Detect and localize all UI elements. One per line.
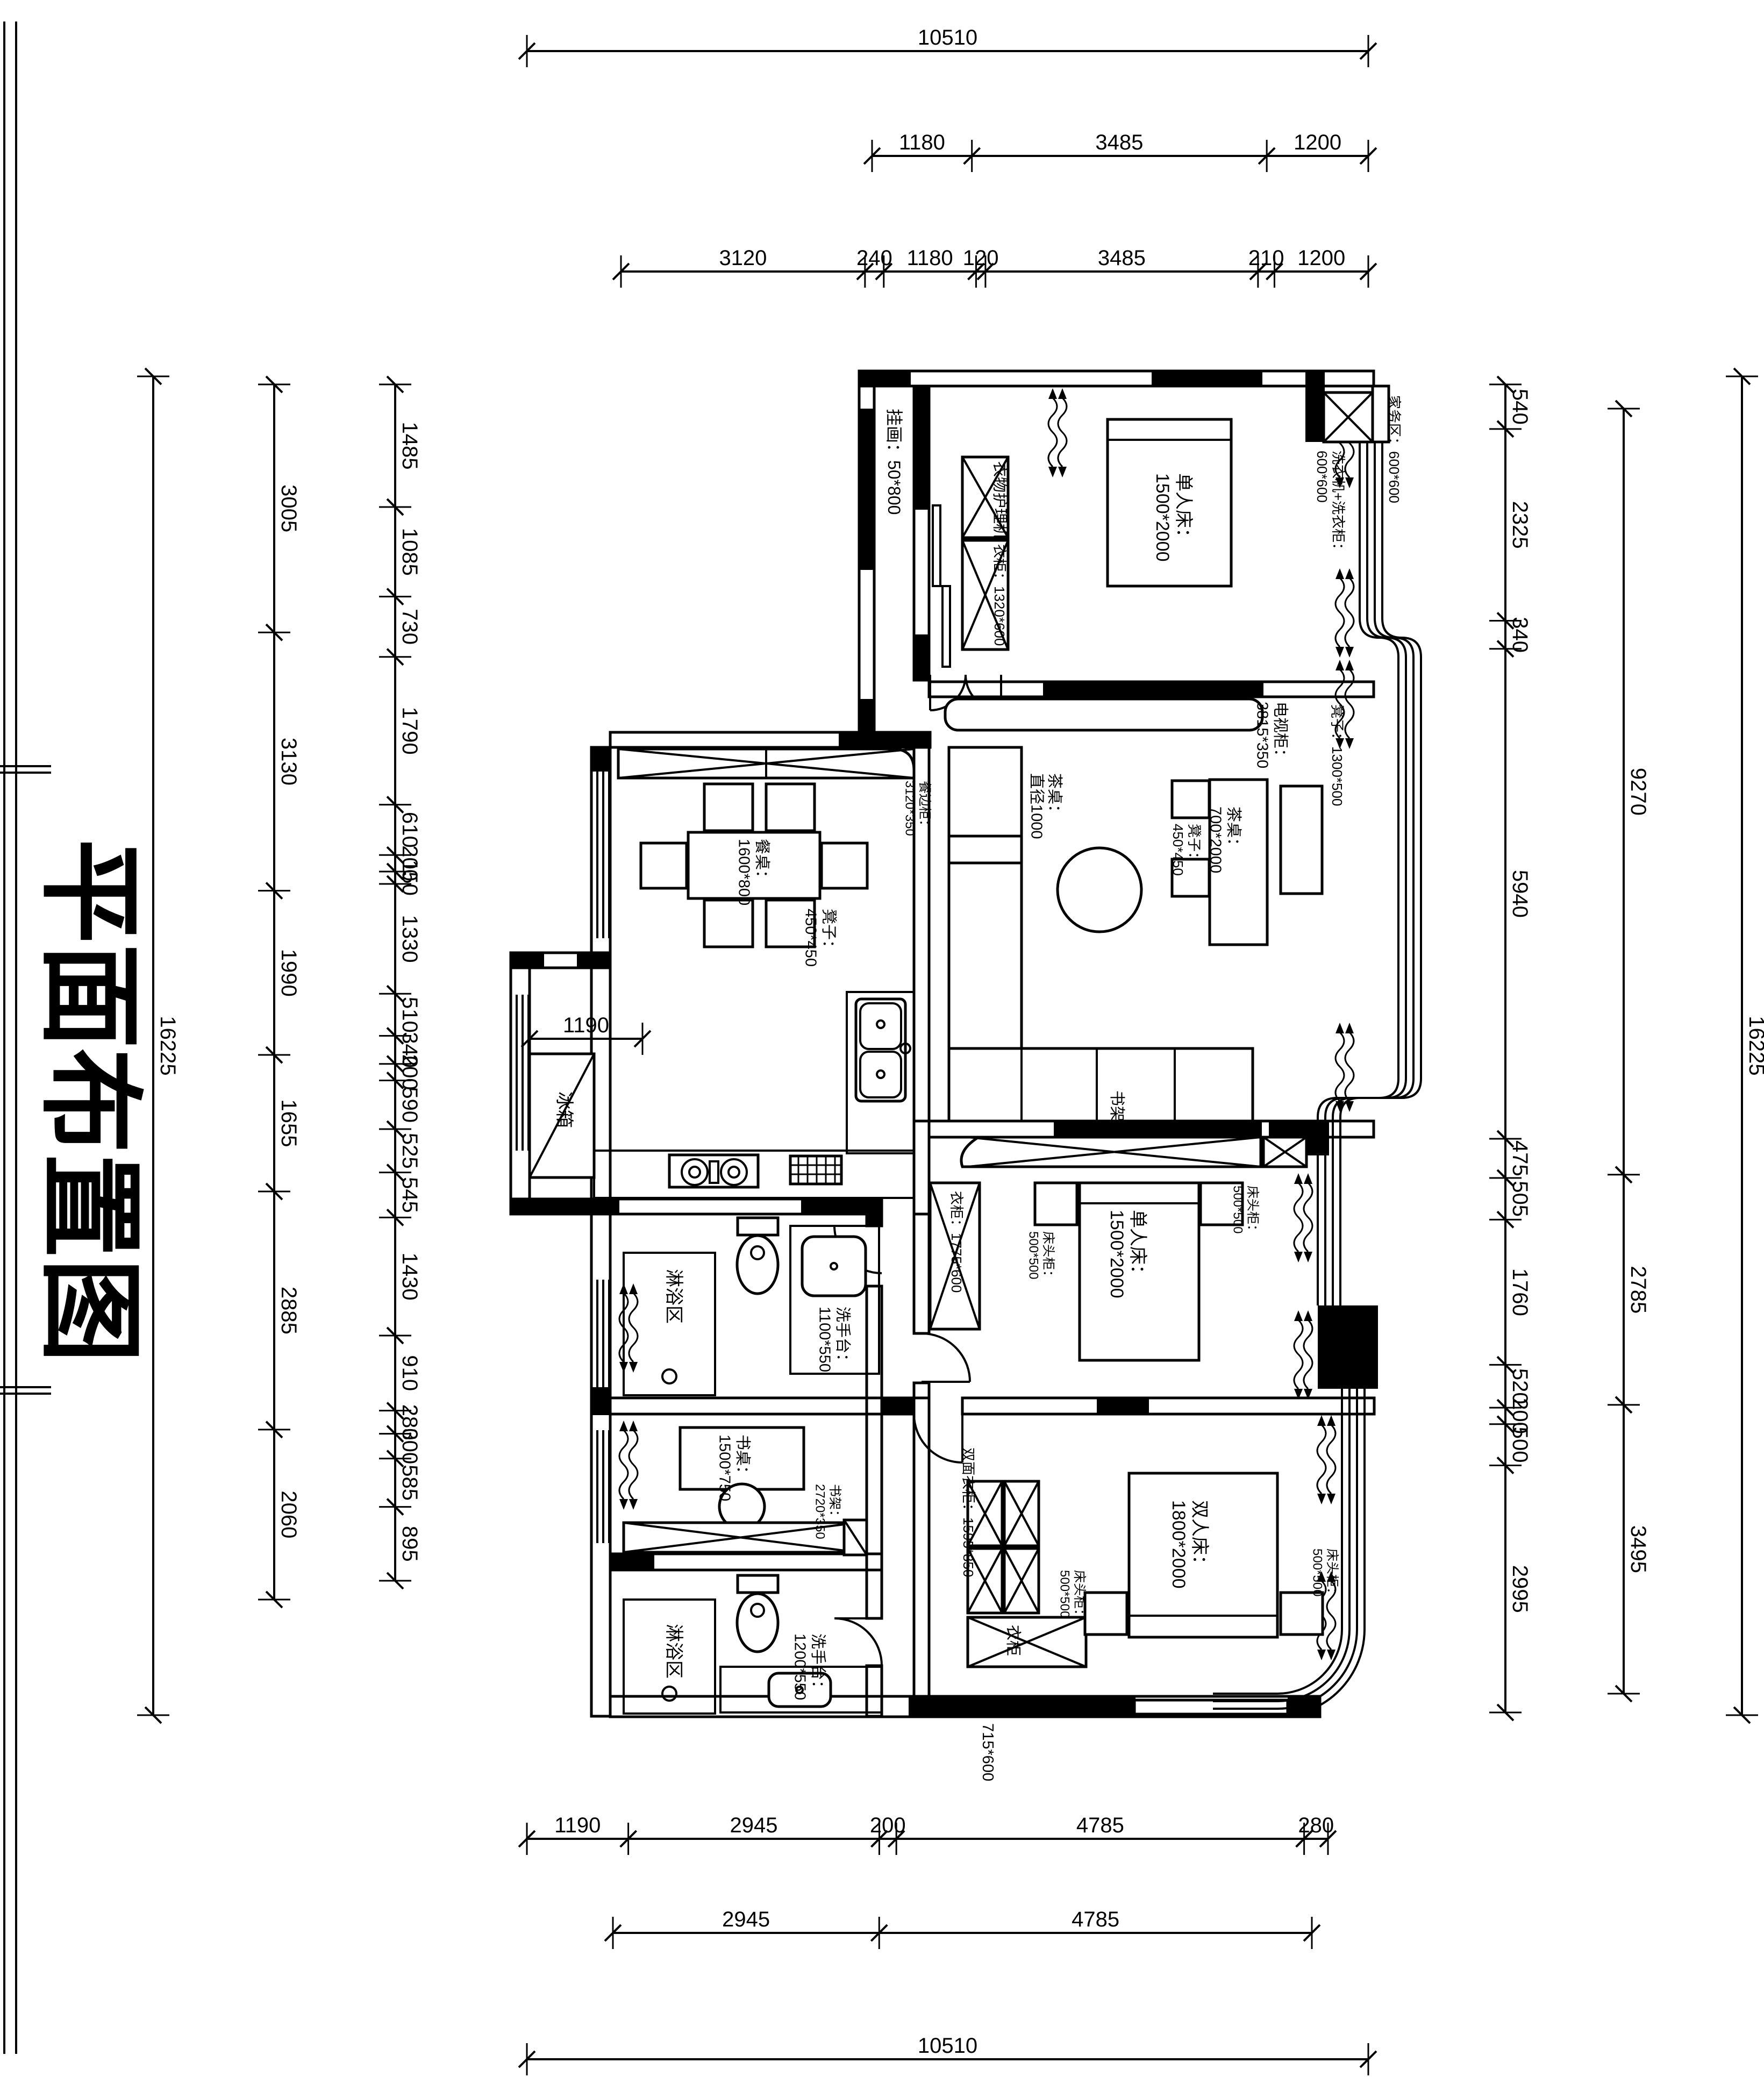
curtain-icon: [1336, 568, 1354, 658]
dim-value: 3485: [1098, 246, 1146, 270]
label-washbasin-1: 洗手台：1100*550: [816, 1307, 852, 1372]
curtain-icon: [1317, 1415, 1336, 1504]
label-nightstand-b2r: 床头柜：500*500: [1230, 1186, 1260, 1237]
dim-value: 4785: [1072, 1908, 1119, 1931]
round-tea-table: [1058, 848, 1141, 932]
dim-value: 240: [856, 246, 892, 270]
dim-value: 1180: [899, 131, 945, 154]
dim-value: 10510: [918, 2034, 977, 2058]
hanging-picture-bar: [859, 409, 874, 570]
dim-value: 1330: [398, 915, 422, 963]
room-living: 茶桌：直径1000 茶桌：700*2000 凳子：1300*500 凳子：450…: [949, 704, 1345, 1122]
dim-value: 1485: [398, 422, 422, 470]
room-bath1: 淋浴区 洗手台：1100*550: [624, 1218, 879, 1395]
window-study: [591, 1430, 609, 1543]
label-double-wardrobe: 双面衣柜：1595*850: [960, 1447, 976, 1577]
dim-value: 2785: [1626, 1266, 1650, 1314]
dim-value: 910: [398, 1355, 422, 1391]
label-wardrobe-m: 衣柜: [1004, 1625, 1022, 1656]
room-bedroom1: 挂画：50*800 衣物护理机 衣柜：1320*600 单人床：1500*200…: [884, 409, 1289, 768]
label-washer: 洗衣机+洗衣柜：600*600: [1314, 451, 1346, 556]
dim-value: 10510: [918, 26, 977, 49]
door-bedroom2: [922, 1333, 970, 1382]
stool-1: [1172, 781, 1209, 818]
dim-value: 3130: [277, 738, 301, 786]
dim-value: 510: [398, 997, 422, 1033]
window-bath1: [591, 1280, 609, 1393]
dim-value: 1200: [1294, 131, 1341, 154]
bookshelf-study: [624, 1520, 867, 1555]
dining-chair: [641, 843, 687, 888]
label-shower-2: 淋浴区: [663, 1624, 684, 1679]
dim-value: 585: [398, 1465, 422, 1501]
dim-value: 16225: [156, 1016, 180, 1075]
dim-value: 1190: [563, 1013, 609, 1037]
label-tv-cabinet: 电视柜：3815*350: [1254, 702, 1289, 768]
dim-value: 3120: [719, 246, 767, 270]
dining-chair: [704, 900, 753, 947]
washbasin-icon-1: [802, 1237, 866, 1296]
label-hanging-picture: 挂画：50*800: [884, 409, 904, 515]
dim-value: 1760: [1508, 1268, 1532, 1316]
dim-value: 2945: [730, 1814, 778, 1837]
label-bench: 凳子：1300*500: [1329, 704, 1345, 806]
bookshelf-bedroom2: [961, 1137, 1306, 1167]
door-master: [914, 1414, 962, 1462]
curtain-icon: [619, 1283, 638, 1373]
tv-cabinet: [945, 699, 1262, 730]
toilet-icon-1: [737, 1218, 778, 1294]
dim-value: 120: [963, 246, 999, 270]
nightstand-m-left: [1085, 1593, 1127, 1635]
dim-value: 200: [870, 1814, 906, 1837]
dim-value: 1200: [1297, 246, 1345, 270]
room-study: 书桌：1500*750 书架：2720*350: [624, 1428, 867, 1555]
label-nightstand-ml: 床头柜：500*500: [1057, 1570, 1087, 1622]
label-round-tea-table: 茶桌：直径1000: [1028, 773, 1063, 839]
floor-drain-icon: [662, 1369, 676, 1383]
dim-value: 2885: [277, 1287, 301, 1334]
dim-value: 340: [1508, 617, 1532, 653]
label-bookshelf-living: 书架: [1108, 1090, 1126, 1122]
dim-chain-right-detail: 5402325340594047550517605202005002995: [1489, 376, 1532, 1721]
nightstand-b2-left: [1035, 1183, 1077, 1225]
dim-value: 2060: [277, 1490, 301, 1538]
dim-value: 895: [398, 1526, 422, 1562]
dim-value: 1430: [398, 1253, 422, 1301]
dim-value: 540: [1508, 389, 1532, 425]
dim-value: 5940: [1508, 870, 1532, 918]
dim-value: 730: [398, 609, 422, 645]
dim-value: 16225: [1745, 1016, 1764, 1075]
dim-value: 4785: [1076, 1814, 1124, 1837]
sliding-door-bedroom1: [933, 505, 950, 667]
dim-value: 475: [1508, 1140, 1532, 1176]
dim-value: 545: [398, 1177, 422, 1213]
dim-chain-bottom-mid: 29454785: [605, 1908, 1320, 1949]
drawing-title: 平面布置图: [31, 839, 148, 1363]
floor-plan-svg: 平面布置图: [0, 0, 1764, 2077]
label-clothes-care: 衣物护理机: [991, 461, 1009, 539]
room-master: 双面衣柜：1595*850 床头柜：500*500 双人床：1800*2000 …: [960, 1447, 1339, 1781]
dim-value: 610: [398, 812, 422, 848]
label-nightstand-b2l: 床头柜：500*500: [1026, 1231, 1055, 1283]
curtain-icon: [619, 1421, 638, 1510]
stove-icon: [669, 1155, 758, 1187]
drain-rack-icon: [790, 1156, 841, 1184]
curtain-icon: [1048, 388, 1067, 477]
dim-value: 500: [1508, 1427, 1532, 1463]
nightstand-m-right: [1281, 1593, 1323, 1635]
dim-value: 1180: [907, 246, 953, 270]
toilet-icon-2: [737, 1575, 778, 1652]
curtain-icon: [1294, 1173, 1312, 1262]
dim-chain-left-rooms: 300531301990165528852060: [258, 376, 301, 1608]
dim-value: 200: [398, 1054, 422, 1090]
dim-chain-top-overall: 10510: [519, 26, 1376, 67]
window-kitchen: [511, 995, 529, 1151]
label-dining-stool: 凳子：450*450: [802, 909, 838, 967]
room-bedroom2: 衣柜：1775*600 床头柜：500*500 单人床：1500*2000 床头…: [930, 1137, 1306, 1360]
floor-drain-icon: [662, 1687, 676, 1701]
dim-value: 1655: [277, 1100, 301, 1147]
label-nightstand-mr: 床头柜：500*500: [1310, 1548, 1339, 1600]
dim-value: 1790: [398, 707, 422, 755]
label-sideboard: 餐边柜：3120*350: [902, 781, 932, 836]
dim-value: 280: [1298, 1814, 1334, 1837]
dim-chain-kitchen-inner: 1190: [522, 1013, 651, 1055]
dim-value: 1085: [398, 528, 422, 576]
bench: [1281, 786, 1322, 894]
dim-value: 3495: [1626, 1525, 1650, 1573]
dim-chain-left-detail: 1485108573017906102001501330510340200590…: [379, 376, 422, 1589]
sideboard: [618, 749, 914, 778]
dim-chain-right-mid: 927027853495: [1608, 401, 1650, 1702]
dim-value: 1990: [277, 949, 301, 997]
dim-value: 505: [1508, 1181, 1532, 1217]
window-ribbon-right: [1318, 442, 1421, 1305]
sheet-frame: 平面布置图: [0, 22, 148, 2054]
laundry-box: [1324, 392, 1373, 442]
label-wardrobe-b2: 衣柜：1775*600: [948, 1191, 965, 1293]
dim-value: 210: [1248, 246, 1284, 270]
curtain-icon: [1294, 1310, 1312, 1400]
room-bath2: 淋浴区 洗手台：1200*550: [624, 1575, 882, 1714]
dim-value: 9270: [1626, 768, 1650, 816]
laundry-area: 家务区：600*600 洗衣机+洗衣柜：600*600: [1314, 392, 1402, 556]
dim-value: 2945: [722, 1908, 770, 1931]
room-dining: 餐边柜：3120*350 餐桌：1600*800 凳子：450*450: [618, 749, 932, 967]
wardrobe-master: [968, 1617, 1086, 1667]
label-housework-area: 家务区：600*600: [1386, 395, 1402, 503]
dining-chair: [822, 843, 867, 888]
dim-chain-top-detail: 3120240118012034852101200: [613, 246, 1376, 288]
label-shower-1: 淋浴区: [663, 1269, 684, 1324]
dim-chain-bottom-overall: 10510: [519, 2034, 1376, 2075]
dim-chain-top-mid: 118034851200: [864, 131, 1376, 172]
label-fridge: 冰箱: [554, 1091, 574, 1128]
dim-value: 1190: [554, 1814, 601, 1837]
dim-value: 150: [398, 860, 422, 896]
dim-chain-bottom-detail: 119029452004785280: [519, 1814, 1336, 1855]
double-sink-icon: [856, 999, 910, 1101]
window-dining: [591, 769, 609, 938]
dim-value: 590: [398, 1087, 422, 1123]
dining-chair: [704, 784, 753, 831]
dim-value: 300: [398, 1428, 422, 1464]
dim-value: 2325: [1508, 501, 1532, 549]
door-bath2: [834, 1618, 882, 1666]
dim-value: 525: [398, 1133, 422, 1169]
double-sided-wardrobe: [968, 1481, 1039, 1613]
label-wardrobe-b1: 衣柜：1320*600: [991, 544, 1008, 646]
dim-value: 2995: [1508, 1565, 1532, 1613]
dim-value: 3005: [277, 484, 301, 532]
dim-value: 3485: [1095, 131, 1143, 154]
dining-chair: [766, 784, 815, 831]
dim-chain-right-overall: 16225: [1726, 368, 1764, 1723]
label-wardrobe-m-size: 715*600: [979, 1723, 996, 1781]
